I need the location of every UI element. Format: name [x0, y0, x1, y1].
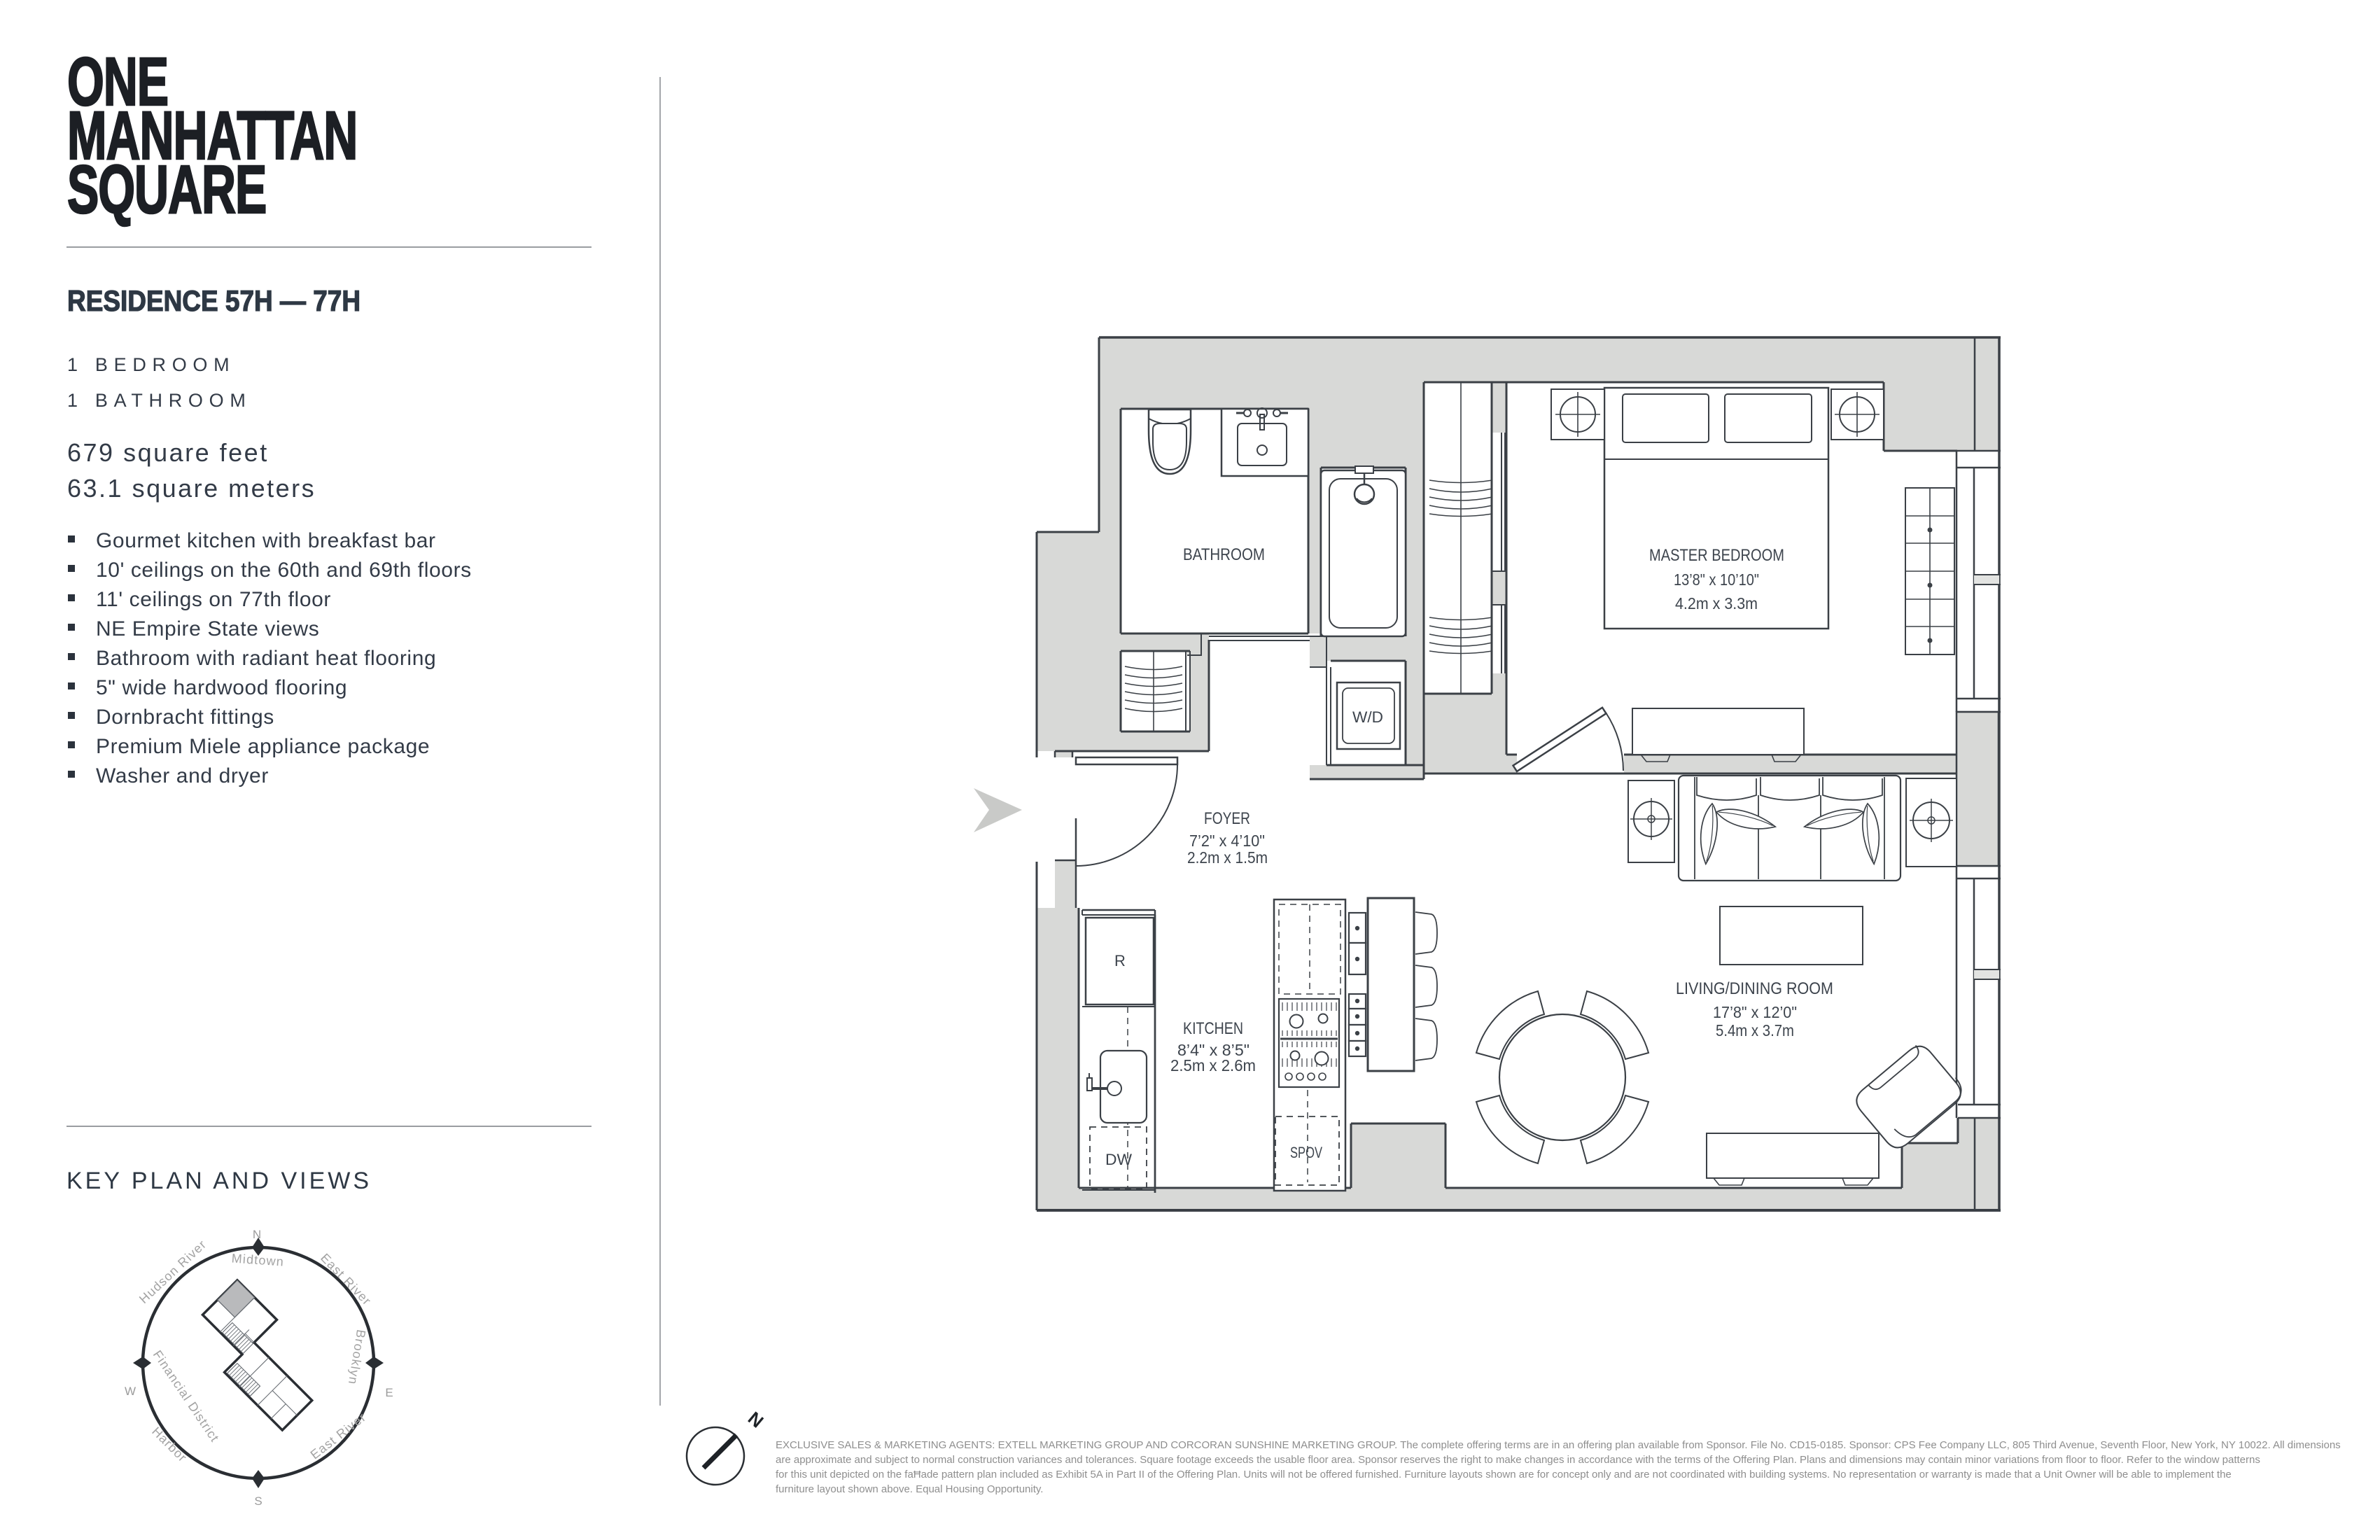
svg-text:East River: East River [318, 1251, 374, 1308]
svg-text:KITCHEN: KITCHEN [1183, 1019, 1243, 1038]
svg-text:W: W [125, 1385, 136, 1398]
svg-text:MASTER BEDROOM: MASTER BEDROOM [1649, 546, 1784, 565]
svg-text:N: N [744, 1408, 768, 1432]
svg-text:E: E [385, 1386, 393, 1399]
svg-text:17’8" x 12’0": 17’8" x 12’0" [1713, 1003, 1797, 1021]
svg-text:R: R [1114, 952, 1126, 969]
svg-text:DW: DW [1105, 1151, 1132, 1168]
svg-text:Brooklyn: Brooklyn [346, 1329, 368, 1386]
svg-text:BATHROOM: BATHROOM [1183, 545, 1265, 564]
svg-text:7’2" x 4’10": 7’2" x 4’10" [1189, 832, 1265, 850]
svg-text:for this unit depicted on the: for this unit depicted on the faĦade pat… [776, 1469, 2232, 1480]
svg-text:East River: East River [308, 1410, 369, 1462]
svg-text:5.4m x 3.7m: 5.4m x 3.7m [1716, 1021, 1794, 1039]
svg-text:SPOV: SPOV [1290, 1144, 1322, 1161]
svg-text:Hudson River: Hudson River [136, 1237, 209, 1306]
svg-text:Midtown: Midtown [231, 1251, 285, 1268]
svg-text:EXCLUSIVE SALES & MARKETING AG: EXCLUSIVE SALES & MARKETING AGENTS: EXTE… [776, 1439, 2341, 1451]
svg-text:LIVING/DINING ROOM: LIVING/DINING ROOM [1676, 979, 1833, 998]
svg-text:2.2m x 1.5m: 2.2m x 1.5m [1187, 848, 1268, 867]
svg-text:4.2m x 3.3m: 4.2m x 3.3m [1675, 594, 1758, 612]
svg-text:are approximate and subject to: are approximate and subject to normal co… [776, 1454, 2260, 1466]
svg-text:furniture layout shown above.: furniture layout shown above. Equal Hous… [776, 1483, 1043, 1495]
svg-text:N: N [253, 1228, 261, 1241]
svg-text:2.5m x 2.6m: 2.5m x 2.6m [1170, 1056, 1256, 1074]
svg-text:W/D: W/D [1352, 708, 1383, 726]
svg-text:Harbor: Harbor [149, 1424, 190, 1465]
svg-text:FOYER: FOYER [1204, 809, 1250, 828]
svg-text:13’8" x 10’10": 13’8" x 10’10" [1674, 570, 1759, 589]
svg-text:S: S [254, 1494, 262, 1508]
